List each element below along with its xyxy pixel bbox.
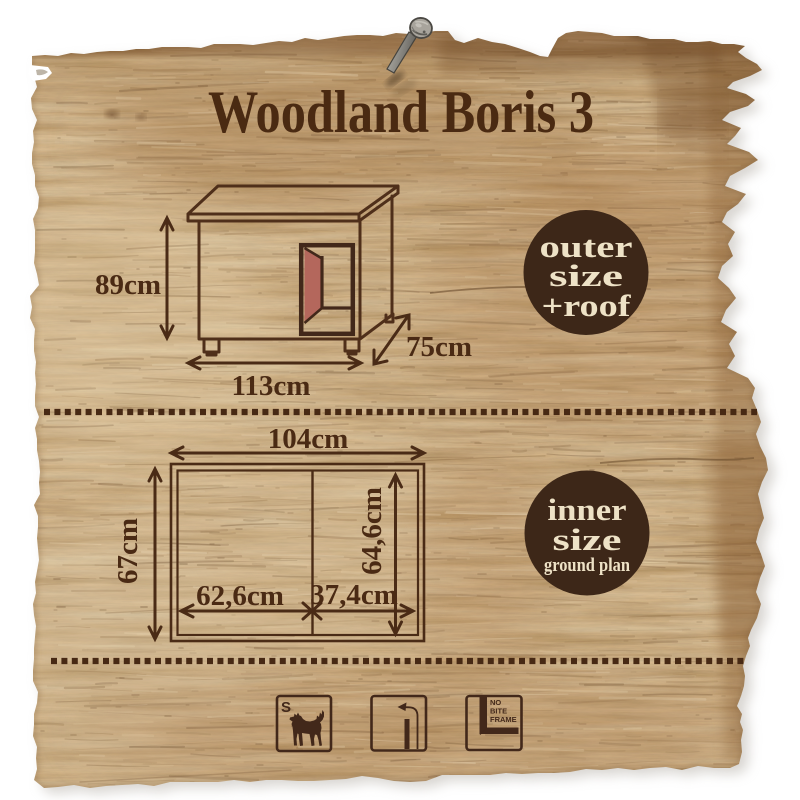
svg-text:Woodland Boris 3: Woodland Boris 3 bbox=[208, 79, 594, 145]
svg-text:104cm: 104cm bbox=[268, 423, 349, 455]
svg-text:89cm: 89cm bbox=[95, 269, 161, 301]
svg-text:FRAME: FRAME bbox=[490, 715, 517, 724]
svg-text:+roof: +roof bbox=[542, 288, 632, 323]
svg-text:64,6cm: 64,6cm bbox=[356, 487, 388, 575]
svg-text:75cm: 75cm bbox=[406, 331, 472, 363]
svg-text:67cm: 67cm bbox=[112, 518, 144, 584]
svg-text:62,6cm: 62,6cm bbox=[196, 580, 284, 612]
svg-text:ground plan: ground plan bbox=[544, 555, 630, 576]
svg-text:size: size bbox=[553, 522, 622, 557]
svg-text:S: S bbox=[281, 699, 291, 716]
svg-text:37,4cm: 37,4cm bbox=[310, 579, 398, 611]
svg-text:113cm: 113cm bbox=[232, 370, 311, 402]
